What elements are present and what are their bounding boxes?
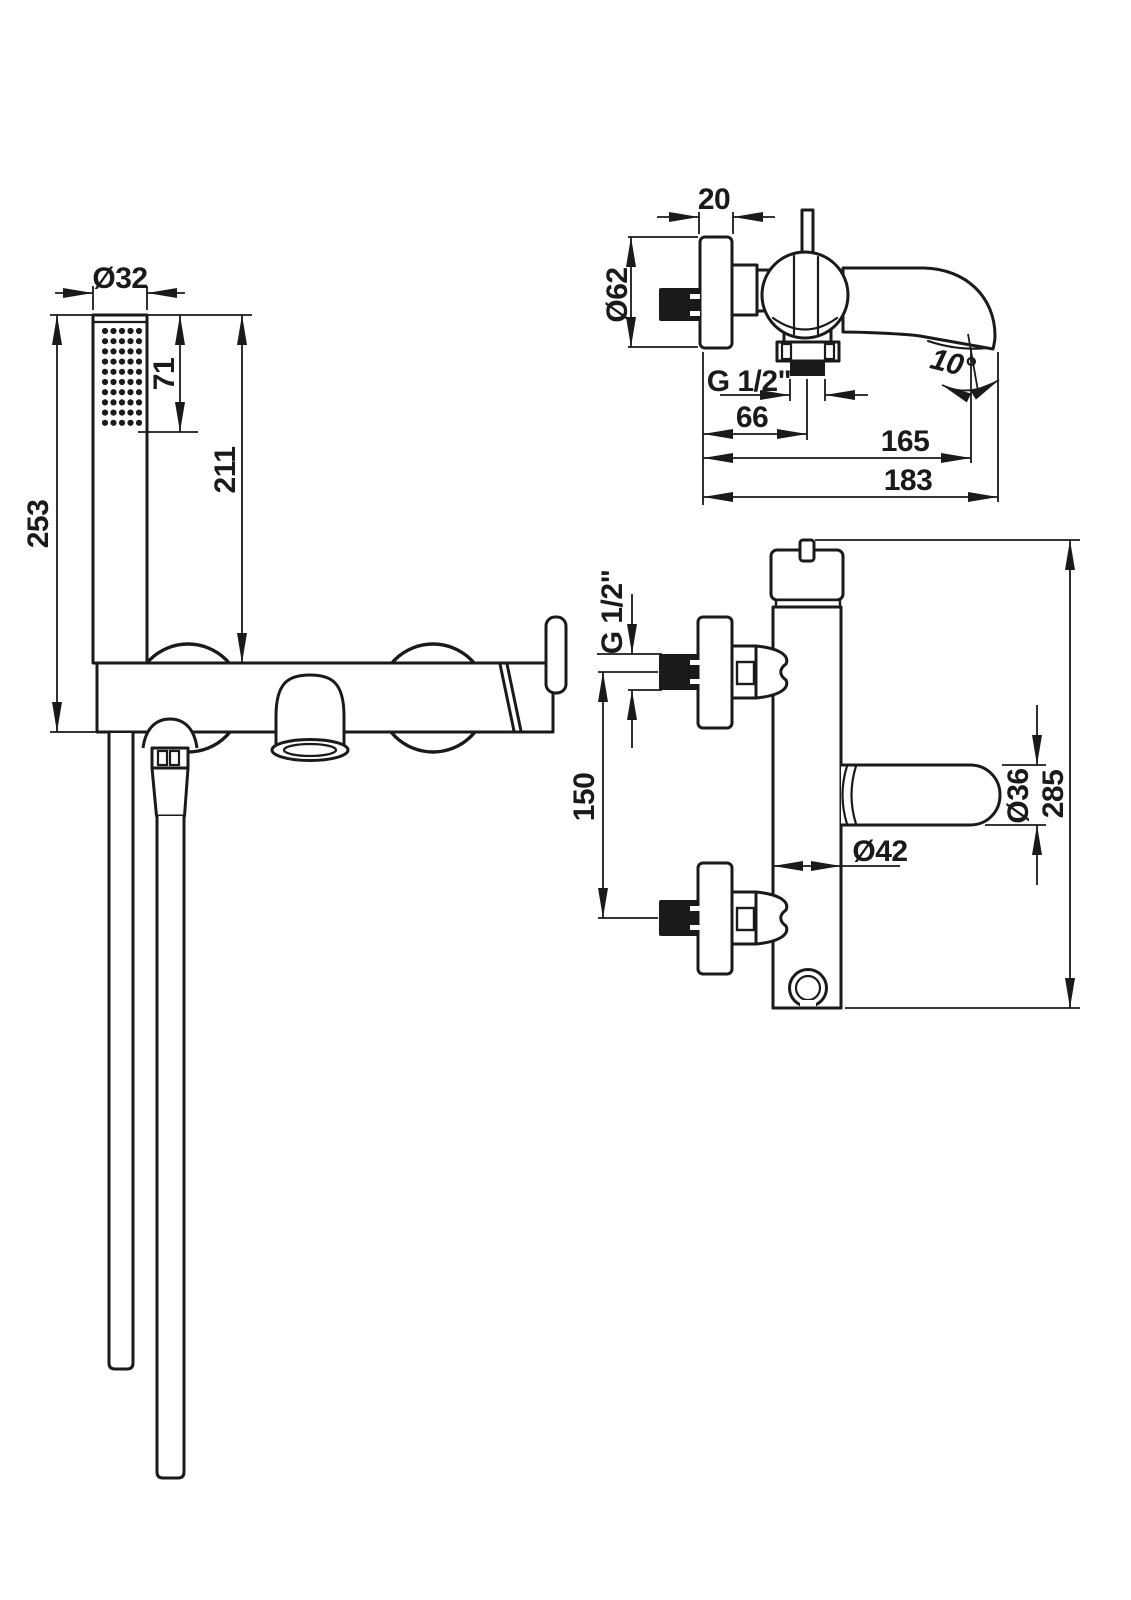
dim-flange-diameter: Ø62: [601, 267, 634, 322]
shower-hose: [143, 719, 197, 1478]
side-view: G 1/2" 150 Ø42 Ø36 285: [568, 540, 1080, 1009]
handset-grip: [109, 733, 133, 1369]
dim-wall-to-thread: 66: [736, 401, 768, 434]
upper-inlet: [659, 617, 787, 728]
dim-lever-diameter: Ø36: [1002, 768, 1035, 823]
dim-handset-length: 211: [209, 447, 242, 494]
spout-top: [843, 268, 995, 349]
lever-handle-side: [841, 765, 1000, 825]
hand-shower: [93, 315, 147, 663]
front-view: Ø32 253 71 211: [22, 262, 566, 1478]
lower-inlet: [659, 863, 787, 974]
dim-inlet-spacing: 150: [568, 773, 601, 822]
drawing-canvas: Ø32 253 71 211: [0, 0, 1131, 1600]
dim-body-diameter: Ø42: [852, 835, 907, 868]
inlet-connector-top: [659, 288, 700, 321]
lever-handle-front: [546, 617, 566, 693]
wall-plate-top: [700, 237, 732, 348]
top-view: 20 Ø62 G 1/2" 66 165 183 10°: [601, 183, 999, 505]
dim-spray-face-length: 71: [148, 358, 181, 390]
handle-stem-top: [802, 210, 813, 257]
valve-body-top: [762, 252, 848, 338]
dim-total-projection: 183: [884, 464, 933, 497]
dim-thread-top: G 1/2": [707, 365, 792, 398]
lever-tip-side: [800, 540, 814, 561]
spout-thread: [790, 361, 825, 376]
dim-flange-thickness: 20: [698, 183, 730, 216]
dim-overall-length: 253: [22, 500, 55, 549]
dim-head-diameter: Ø32: [92, 262, 147, 295]
dim-wall-to-spout-mouth: 165: [881, 425, 930, 458]
spout-front: [272, 675, 348, 761]
dim-overall-height: 285: [1037, 770, 1070, 819]
dim-thread-side: G 1/2": [596, 570, 629, 655]
technical-drawing: Ø32 253 71 211: [0, 0, 1131, 1600]
